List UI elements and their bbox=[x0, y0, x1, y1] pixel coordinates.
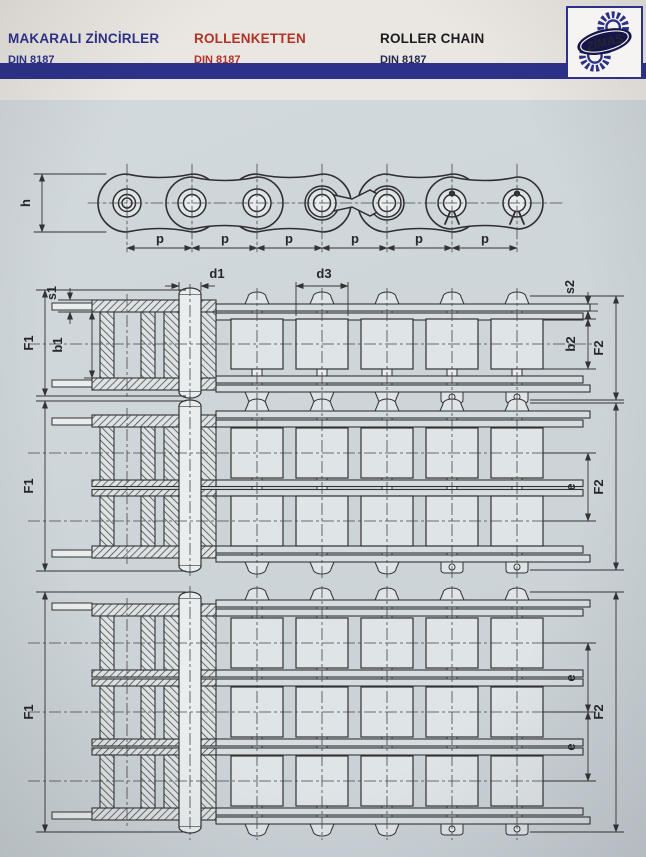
dim-label-b1: b1 bbox=[50, 337, 65, 352]
dim-label-p: p bbox=[351, 231, 359, 246]
drawing-area: h p p p p p p bbox=[0, 100, 646, 857]
section-view bbox=[52, 400, 216, 572]
title-turkish: MAKARALI ZİNCİRLER DIN 8187 bbox=[8, 31, 159, 66]
title-english: ROLLER CHAIN DIN 8187 bbox=[380, 31, 484, 66]
dim-label-p: p bbox=[156, 231, 164, 246]
section-view bbox=[52, 288, 216, 398]
title-german-label: ROLLENKETTEN bbox=[194, 31, 306, 46]
page-header: MAKARALI ZİNCİRLER DIN 8187 ROLLENKETTEN… bbox=[0, 0, 646, 100]
title-turkish-label: MAKARALI ZİNCİRLER bbox=[8, 31, 159, 46]
dim-label-e: e bbox=[563, 743, 578, 750]
dim-label-f1: F1 bbox=[21, 335, 36, 350]
triplex-chain-drawing: F1 e e F2 bbox=[21, 586, 624, 840]
dim-label-p: p bbox=[481, 231, 489, 246]
dim-label-p: p bbox=[285, 231, 293, 246]
header-rule-bar bbox=[0, 63, 646, 79]
dim-label-f2: F2 bbox=[591, 340, 606, 355]
dim-label-e: e bbox=[563, 674, 578, 681]
dim-label-s2: s2 bbox=[563, 280, 577, 294]
dim-label-d1: d1 bbox=[209, 266, 224, 281]
dim-label-f1: F1 bbox=[21, 478, 36, 493]
catalog-page: MAKARALI ZİNCİRLER DIN 8187 ROLLENKETTEN… bbox=[0, 0, 646, 857]
dim-label-s1: s1 bbox=[45, 286, 59, 300]
dim-label-e: e bbox=[563, 483, 578, 490]
zimas-logo: ZİMAŞ bbox=[566, 6, 643, 79]
section-view bbox=[52, 592, 216, 833]
zimas-logo-graphic: ZİMAŞ bbox=[568, 8, 641, 77]
dim-label-h: h bbox=[18, 199, 33, 207]
dim-label-f2: F2 bbox=[591, 479, 606, 494]
roller-section bbox=[201, 312, 216, 378]
dim-label-p: p bbox=[415, 231, 423, 246]
simplex-chain-drawing: F1 s1 b1 d1 d3 bbox=[21, 266, 624, 408]
roller-section bbox=[164, 312, 179, 378]
dim-label-b2: b2 bbox=[563, 336, 578, 351]
technical-drawings: h p p p p p p bbox=[0, 100, 646, 857]
dim-label-p: p bbox=[221, 231, 229, 246]
title-german: ROLLENKETTEN DIN 8187 bbox=[194, 31, 306, 66]
dim-label-d3: d3 bbox=[316, 266, 331, 281]
dim-label-f2: F2 bbox=[591, 704, 606, 719]
title-english-label: ROLLER CHAIN bbox=[380, 31, 484, 46]
bushing-section bbox=[141, 312, 155, 378]
bushing-section bbox=[100, 312, 114, 378]
dim-label-f1: F1 bbox=[21, 704, 36, 719]
dimension-b1 bbox=[84, 312, 100, 378]
chain-side-elevation: h p p p p p p bbox=[18, 164, 562, 252]
duplex-chain-drawing: F1 e F2 bbox=[21, 396, 624, 578]
